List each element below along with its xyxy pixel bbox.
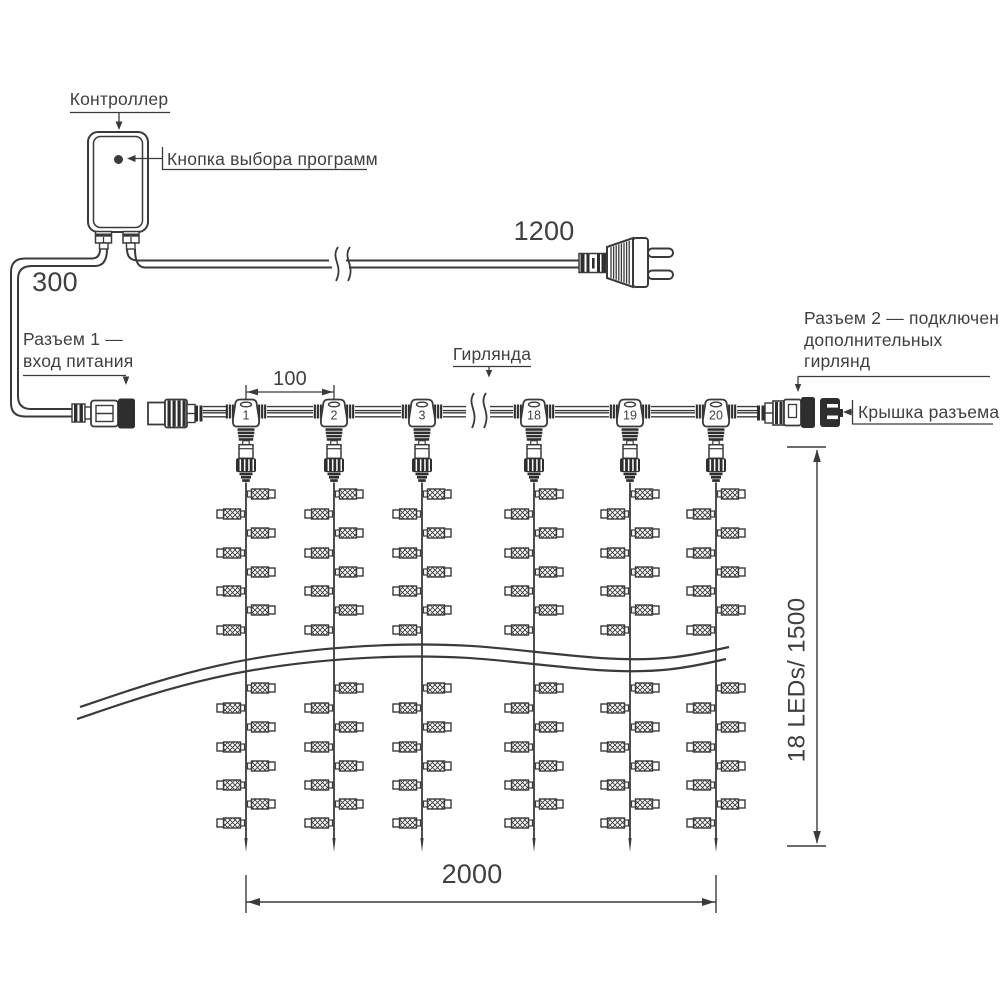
power-lead-length: 300 — [32, 272, 78, 294]
led-lamp — [248, 489, 276, 499]
arrowhead — [813, 450, 821, 463]
arrowhead — [123, 377, 130, 386]
curtain-height-label: 18 LEDs/ 1500 — [786, 598, 808, 763]
garland-drop: 19 — [601, 400, 659, 853]
led-lamp — [217, 625, 245, 635]
connector-1-label-line2: вход питания — [23, 351, 133, 373]
led-lamp — [336, 761, 364, 771]
led-lamp — [601, 742, 629, 752]
led-lamp — [632, 528, 660, 538]
led-lamp — [536, 489, 564, 499]
plug-prong — [648, 249, 673, 258]
led-lamp — [248, 528, 276, 538]
led-lamp — [601, 780, 629, 790]
connector-2-label: Разъем 2 — подключение дополнительных ги… — [804, 308, 1000, 373]
garland-label: Гирлянда — [453, 344, 531, 366]
program-button-dot — [114, 155, 123, 164]
arrowhead — [702, 898, 715, 906]
connector-1 — [72, 399, 203, 429]
drop-number: 18 — [527, 409, 541, 423]
led-lamp — [505, 586, 533, 596]
led-lamp — [393, 780, 421, 790]
led-lamp — [632, 722, 660, 732]
led-lamp — [217, 509, 245, 519]
garland-drop: 18 — [505, 400, 563, 853]
led-lamp — [424, 761, 452, 771]
program-button-label: Кнопка выбора программ — [167, 149, 378, 171]
led-lamp — [336, 489, 364, 499]
threaded-ring — [118, 399, 135, 429]
connector-2-label-line1: Разъем 2 — подключение — [804, 308, 1000, 330]
led-lamp — [505, 625, 533, 635]
led-lamp — [718, 567, 746, 577]
led-lamp — [217, 703, 245, 713]
led-lamp — [687, 586, 715, 596]
led-lamp — [601, 548, 629, 558]
led-lamp — [217, 818, 245, 828]
led-lamp — [424, 683, 452, 693]
led-lamp — [217, 780, 245, 790]
led-lamp — [248, 761, 276, 771]
led-lamp — [424, 489, 452, 499]
diagram-canvas: 123181920 — [0, 0, 1000, 1000]
led-lamp — [393, 509, 421, 519]
led-lamp — [687, 548, 715, 558]
led-lamp — [305, 818, 333, 828]
led-lamp — [601, 586, 629, 596]
led-lamp — [217, 586, 245, 596]
drop-number: 20 — [709, 409, 723, 423]
led-lamp — [505, 780, 533, 790]
led-lamp — [505, 742, 533, 752]
led-lamp — [632, 489, 660, 499]
connector-2-label-line3: гирлянд — [804, 351, 1000, 373]
led-lamp — [336, 567, 364, 577]
led-lamp — [393, 586, 421, 596]
led-lamp — [424, 722, 452, 732]
led-lamp — [305, 703, 333, 713]
led-lamp — [536, 605, 564, 615]
led-lamp — [718, 528, 746, 538]
plug-prong — [648, 271, 673, 280]
led-lamp — [248, 799, 276, 809]
led-lamp — [305, 509, 333, 519]
led-lamp — [718, 722, 746, 732]
power-plug — [579, 238, 673, 287]
led-lamp — [632, 761, 660, 771]
led-lamp — [248, 567, 276, 577]
arrowhead — [795, 384, 801, 392]
garland-drop: 20 — [687, 400, 745, 853]
led-lamp — [632, 799, 660, 809]
led-lamp — [687, 703, 715, 713]
led-lamp — [336, 605, 364, 615]
garland-drop: 1 — [217, 400, 275, 853]
led-lamp — [424, 799, 452, 809]
led-lamp — [536, 799, 564, 809]
led-lamp — [217, 548, 245, 558]
led-lamp — [687, 625, 715, 635]
led-lamp — [601, 818, 629, 828]
led-lamp — [601, 703, 629, 713]
led-lamp — [536, 722, 564, 732]
garland-break-symbol — [471, 393, 486, 428]
curtain-width-label: 2000 — [442, 864, 503, 886]
cord-break-symbol — [335, 247, 350, 281]
led-lamp — [505, 703, 533, 713]
cap-label: Крышка разъема — [858, 402, 999, 424]
controller-label: Контроллер — [70, 89, 169, 111]
led-lamp — [248, 683, 276, 693]
drop-spacing-label: 100 — [273, 369, 307, 391]
led-lamp — [217, 742, 245, 752]
led-lamp — [393, 548, 421, 558]
led-lamp — [305, 548, 333, 558]
led-lamp — [536, 761, 564, 771]
arrowhead — [843, 409, 852, 416]
arrowhead — [486, 370, 492, 378]
connector-2-body — [801, 397, 815, 428]
led-lamp — [718, 683, 746, 693]
led-lamp — [536, 567, 564, 577]
cord-length: 1200 — [514, 221, 575, 243]
led-lamp — [305, 586, 333, 596]
arrowhead — [813, 831, 821, 844]
arrowhead — [248, 898, 261, 906]
led-lamp — [336, 683, 364, 693]
led-lamp — [718, 799, 746, 809]
led-lamp — [536, 528, 564, 538]
garland-cable — [203, 407, 757, 417]
connector-cap — [820, 398, 843, 427]
drop-number: 2 — [331, 409, 338, 423]
connector-1-label: Разъем 1 — вход питания — [23, 329, 133, 372]
led-lamp — [424, 605, 452, 615]
led-lamp — [505, 818, 533, 828]
led-lamp — [718, 761, 746, 771]
led-lamp — [393, 742, 421, 752]
led-lamp — [601, 625, 629, 635]
led-lamp — [424, 528, 452, 538]
led-lamp — [505, 509, 533, 519]
led-lamp — [601, 509, 629, 519]
led-lamp — [336, 722, 364, 732]
garland-drop: 3 — [393, 400, 451, 853]
led-lamp — [718, 605, 746, 615]
curtain: 123181920 — [217, 400, 745, 853]
diagram-page: 123181920 — [0, 0, 1000, 1000]
led-lamp — [687, 780, 715, 790]
led-lamp — [505, 548, 533, 558]
led-lamp — [536, 683, 564, 693]
led-lamp — [336, 799, 364, 809]
drop-number: 1 — [243, 409, 250, 423]
drop-number: 19 — [623, 409, 637, 423]
connector-2 — [757, 397, 815, 428]
arrowhead — [322, 389, 333, 396]
led-lamp — [424, 567, 452, 577]
led-lamp — [305, 780, 333, 790]
controller — [88, 132, 148, 249]
garland-drop: 2 — [305, 400, 363, 853]
led-lamp — [248, 722, 276, 732]
power-cord-cable — [127, 249, 581, 268]
led-lamp — [687, 818, 715, 828]
led-lamp — [336, 528, 364, 538]
led-lamp — [248, 605, 276, 615]
connector-1-label-line1: Разъем 1 — — [23, 329, 133, 351]
led-lamp — [687, 509, 715, 519]
led-lamp — [393, 818, 421, 828]
controller-outlets — [96, 232, 140, 250]
led-lamp — [718, 489, 746, 499]
led-lamp — [393, 625, 421, 635]
led-lamp — [305, 625, 333, 635]
led-lamp — [632, 683, 660, 693]
led-lamp — [687, 742, 715, 752]
connector-2-label-line2: дополнительных — [804, 330, 1000, 352]
led-lamp — [305, 742, 333, 752]
led-lamp — [393, 703, 421, 713]
arrowhead — [116, 122, 123, 131]
arrowhead — [247, 389, 258, 396]
led-lamp — [632, 567, 660, 577]
drop-number: 3 — [419, 409, 426, 423]
led-lamp — [632, 605, 660, 615]
